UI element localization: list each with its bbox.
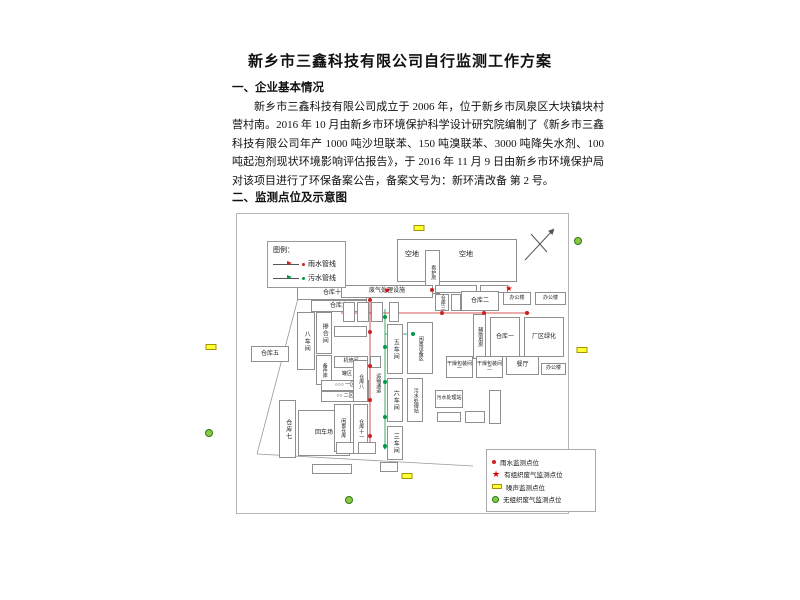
- yellow-rect-marker: [414, 225, 425, 231]
- pipeline-dot-icon: [302, 277, 305, 280]
- pipeline-legend: 图例： 雨水管线污水管线: [267, 241, 346, 288]
- green-dot-marker: [383, 345, 387, 349]
- points-legend-label: 噪声监测点位: [506, 482, 545, 492]
- document-page: 新乡市三鑫科技有限公司自行监测工作方案 一、企业基本情况 新乡市三鑫科技有限公司…: [0, 0, 800, 600]
- pipeline-legend-item: 污水管线: [273, 273, 340, 283]
- pipeline-legend-title: 图例：: [273, 245, 340, 255]
- green-dot-marker: [383, 415, 387, 419]
- points-legend-item: ★有组织废气监测点位: [492, 469, 590, 479]
- red-star-icon: ★: [492, 470, 500, 479]
- monitoring-points-legend: 雨水监测点位★有组织废气监测点位噪声监测点位无组织废气监测点位: [486, 449, 596, 512]
- section1-paragraph: 新乡市三鑫科技有限公司成立于 2006 年，位于新乡市凤泉区大块镇块村营村南。2…: [232, 98, 604, 190]
- points-legend-item: 噪声监测点位: [492, 482, 590, 492]
- red-dot-marker: [368, 434, 372, 438]
- red-dot-marker: [368, 398, 372, 402]
- yellow-rect-icon: [492, 484, 502, 489]
- section1-heading: 一、企业基本情况: [232, 79, 324, 95]
- points-legend-label: 有组织废气监测点位: [504, 469, 563, 479]
- green-dot-marker: [383, 315, 387, 319]
- pipeline-dot-icon: [302, 263, 305, 266]
- points-legend-item: 无组织废气监测点位: [492, 494, 590, 504]
- green-circle-marker: [345, 496, 353, 504]
- green-dot-marker: [383, 380, 387, 384]
- pipeline-legend-label: 污水管线: [308, 273, 336, 283]
- red-dot-marker: [368, 364, 372, 368]
- green-dot-marker: [411, 332, 415, 336]
- pipeline-legend-label: 雨水管线: [308, 259, 336, 269]
- green-circle-marker: [574, 237, 582, 245]
- yellow-rect-marker: [402, 473, 413, 479]
- red-dot-marker: [525, 311, 529, 315]
- points-legend-label: 无组织废气监测点位: [503, 494, 562, 504]
- section2-heading: 二、监测点位及示意图: [232, 189, 347, 205]
- red-dot-marker: [440, 311, 444, 315]
- pipeline-arrow-icon: [273, 278, 299, 279]
- yellow-rect-marker: [206, 344, 217, 350]
- page-title: 新乡市三鑫科技有限公司自行监测工作方案: [0, 50, 800, 71]
- red-star-marker: ★: [505, 285, 512, 293]
- red-dot-marker: [430, 288, 434, 292]
- red-dot-marker: [368, 298, 372, 302]
- pipeline-arrow-icon: [273, 264, 299, 265]
- points-legend-label: 雨水监测点位: [500, 457, 539, 467]
- red-dot-marker: [482, 311, 486, 315]
- red-dot-icon: [492, 460, 496, 464]
- green-dot-marker: [383, 444, 387, 448]
- green-circle-marker: [205, 429, 213, 437]
- points-legend-item: 雨水监测点位: [492, 457, 590, 467]
- red-dot-marker: [368, 330, 372, 334]
- pipeline-legend-item: 雨水管线: [273, 259, 340, 269]
- red-star-marker: ★: [383, 287, 390, 295]
- yellow-rect-marker: [577, 347, 588, 353]
- green-circle-icon: [492, 496, 499, 503]
